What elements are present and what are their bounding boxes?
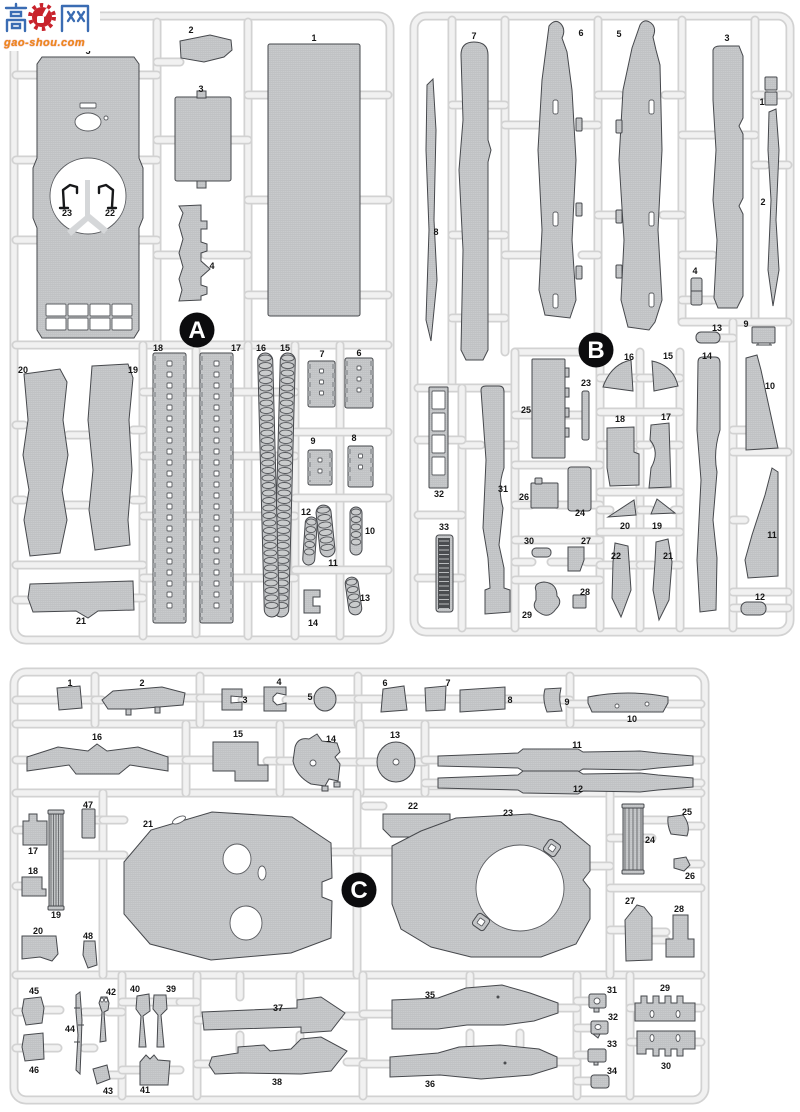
part-C25-label: 25 (682, 807, 692, 817)
part-C14-label: 14 (326, 734, 336, 744)
part-A20 (23, 369, 68, 556)
sprue-C-badge-letter: C (350, 877, 367, 904)
part-B5-label: 5 (616, 29, 621, 39)
part-B13-label: 13 (712, 323, 722, 333)
part-B22-label: 22 (611, 551, 621, 561)
part-C42-label: 42 (106, 987, 116, 997)
site-logo: gao-shou.com (2, 1, 100, 51)
part-B30-label: 30 (524, 536, 534, 546)
part-C15-label: 15 (233, 729, 243, 739)
part-B3-label: 3 (724, 33, 729, 43)
part-A7 (308, 361, 335, 407)
part-A6 (345, 358, 373, 408)
part-C45-label: 45 (29, 986, 39, 996)
part-C7-label: 7 (445, 678, 450, 688)
part-C34-label: 34 (607, 1066, 617, 1076)
part-B13 (696, 332, 720, 343)
part-B20-label: 20 (620, 521, 630, 531)
part-B12-label: 12 (755, 592, 765, 602)
part-C19-label: 19 (51, 910, 61, 920)
part-A8-label: 8 (351, 433, 356, 443)
part-C8 (460, 687, 505, 712)
part-A6-label: 6 (356, 348, 361, 358)
part-A17 (200, 353, 233, 623)
part-C2-label: 2 (139, 678, 144, 688)
part-C10-label: 10 (627, 714, 637, 724)
part-C28-label: 28 (674, 904, 684, 914)
part-C47-label: 47 (83, 800, 93, 810)
part-A12-label: 12 (301, 507, 311, 517)
part-B31-label: 31 (498, 484, 508, 494)
logo-char-wang-icon (62, 6, 88, 31)
part-C6-label: 6 (382, 678, 387, 688)
part-B12 (741, 602, 766, 615)
logo-char-gao-icon (6, 4, 26, 31)
part-B2-label: 2 (760, 197, 765, 207)
part-B4 (691, 278, 702, 305)
part-C4-label: 4 (276, 677, 281, 687)
part-B4-label: 4 (692, 266, 697, 276)
part-C35-label: 35 (425, 990, 435, 1000)
part-C24-label: 24 (645, 835, 655, 845)
part-C16-label: 16 (92, 732, 102, 742)
part-B18 (607, 427, 639, 486)
part-A22-label: 22 (105, 208, 115, 218)
part-C26-label: 26 (685, 871, 695, 881)
part-A16-label: 16 (256, 343, 266, 353)
part-C5-label: 5 (307, 692, 312, 702)
part-C1 (57, 686, 82, 710)
part-A10-label: 10 (365, 526, 375, 536)
part-B23-label: 23 (581, 378, 591, 388)
part-B18-label: 18 (615, 414, 625, 424)
part-B7-label: 7 (471, 31, 476, 41)
part-B14-label: 14 (702, 351, 712, 361)
part-C13 (377, 742, 415, 782)
part-B24 (568, 467, 591, 511)
part-C5 (314, 687, 336, 711)
part-B1-label: 1 (759, 97, 764, 107)
part-C9 (544, 688, 562, 712)
part-B17-label: 17 (661, 412, 671, 422)
part-A20-label: 20 (18, 365, 28, 375)
part-A9-label: 9 (310, 436, 315, 446)
part-A19-label: 19 (128, 365, 138, 375)
sprue-A-badge-letter: A (188, 317, 205, 344)
part-C3-label: 3 (242, 695, 247, 705)
part-B25 (532, 359, 569, 458)
part-B8-label: 8 (433, 227, 438, 237)
sprue-B-badge: B (579, 333, 614, 368)
part-A19 (88, 364, 133, 550)
part-A3-label: 3 (198, 84, 203, 94)
part-B30 (532, 548, 551, 557)
part-C10 (588, 693, 668, 712)
part-B21-label: 21 (663, 551, 673, 561)
part-B7 (459, 42, 491, 360)
part-C34 (591, 1075, 609, 1088)
instruction-scan-page: { "logo": { "site_name": "高手网", "char_le… (0, 0, 800, 1112)
part-C17-label: 17 (28, 846, 38, 856)
part-B9 (752, 327, 775, 345)
part-C19 (48, 810, 64, 910)
part-B33-label: 33 (439, 522, 449, 532)
part-B32 (429, 387, 448, 488)
site-domain-text: gao-shou.com (4, 37, 96, 49)
part-C40-label: 40 (130, 984, 140, 994)
part-C29-label: 29 (660, 983, 670, 993)
part-C20-label: 20 (33, 926, 43, 936)
part-B26-label: 26 (519, 492, 529, 502)
part-B33 (436, 535, 453, 612)
part-A7-label: 7 (319, 349, 324, 359)
part-C24 (622, 804, 644, 874)
part-B15-label: 15 (663, 351, 673, 361)
part-C48-label: 48 (83, 931, 93, 941)
part-C12-label: 12 (573, 784, 583, 794)
part-C43-label: 43 (103, 1086, 113, 1096)
part-C44-label: 44 (65, 1024, 75, 1034)
part-C7 (425, 686, 446, 711)
part-C27-label: 27 (625, 896, 635, 906)
part-C25 (668, 815, 689, 836)
part-C9-label: 9 (564, 697, 569, 707)
part-A17-label: 17 (231, 343, 241, 353)
part-C31-label: 31 (607, 985, 617, 995)
part-B9-label: 9 (743, 319, 748, 329)
part-A21-label: 21 (76, 616, 86, 626)
part-C23-label: 23 (503, 808, 513, 818)
part-C22-label: 22 (408, 801, 418, 811)
part-C32-label: 32 (608, 1012, 618, 1022)
sprue-C-badge: C (342, 873, 377, 908)
sprue-A-badge: A (180, 313, 215, 348)
part-B32-label: 32 (434, 489, 444, 499)
part-C45 (22, 997, 44, 1025)
part-C8-label: 8 (507, 695, 512, 705)
part-A18-label: 18 (153, 343, 163, 353)
part-C33-label: 33 (607, 1039, 617, 1049)
part-B6-label: 6 (578, 28, 583, 38)
site-logo-glyphs (4, 2, 96, 34)
part-B19-label: 19 (652, 521, 662, 531)
part-C18-label: 18 (28, 866, 38, 876)
part-A1 (268, 44, 360, 316)
part-C18 (22, 877, 46, 896)
part-A18 (153, 353, 186, 623)
part-C13-label: 13 (390, 730, 400, 740)
part-A15-label: 15 (280, 343, 290, 353)
part-A14-label: 14 (308, 618, 318, 628)
part-A5 (33, 57, 143, 338)
part-C23 (392, 814, 590, 957)
part-C46-label: 46 (29, 1065, 39, 1075)
part-A8 (348, 446, 373, 487)
part-A10 (350, 507, 362, 555)
part-B24-label: 24 (575, 508, 585, 518)
part-B27-label: 27 (581, 536, 591, 546)
part-B11-label: 11 (767, 530, 777, 540)
sprue-B-badge-letter: B (587, 337, 604, 364)
part-B28-label: 28 (580, 587, 590, 597)
part-C37-label: 37 (273, 1003, 283, 1013)
part-C1-label: 1 (67, 678, 72, 688)
part-C21 (124, 812, 332, 960)
part-C46 (22, 1033, 44, 1061)
part-A2-label: 2 (188, 25, 193, 35)
part-C20 (22, 936, 58, 961)
part-B25-label: 25 (521, 405, 531, 415)
part-C47 (82, 809, 95, 838)
part-B27 (568, 547, 584, 571)
part-B23 (582, 391, 589, 440)
logo-gear-icon (30, 5, 54, 29)
part-A3 (175, 91, 231, 188)
part-B16-label: 16 (624, 352, 634, 362)
part-A9 (308, 450, 332, 485)
part-C11-label: 11 (572, 740, 582, 750)
part-C6 (381, 686, 407, 712)
part-C36-label: 36 (425, 1079, 435, 1089)
part-A13-label: 13 (360, 593, 370, 603)
part-C38-label: 38 (272, 1077, 282, 1087)
part-B26 (531, 478, 558, 508)
part-A4-label: 4 (209, 261, 214, 271)
part-B29-label: 29 (522, 610, 532, 620)
part-C41-label: 41 (140, 1085, 150, 1095)
part-B10-label: 10 (765, 381, 775, 391)
part-A11-label: 11 (328, 558, 338, 568)
part-C21-label: 21 (143, 819, 153, 829)
part-B3 (713, 46, 743, 308)
part-C39-label: 39 (166, 984, 176, 994)
part-A23-label: 23 (62, 208, 72, 218)
part-C30-label: 30 (661, 1061, 671, 1071)
sprue-board: 1234522236789101112131415161718192021A12… (0, 0, 800, 1112)
part-A1-label: 1 (311, 33, 316, 43)
